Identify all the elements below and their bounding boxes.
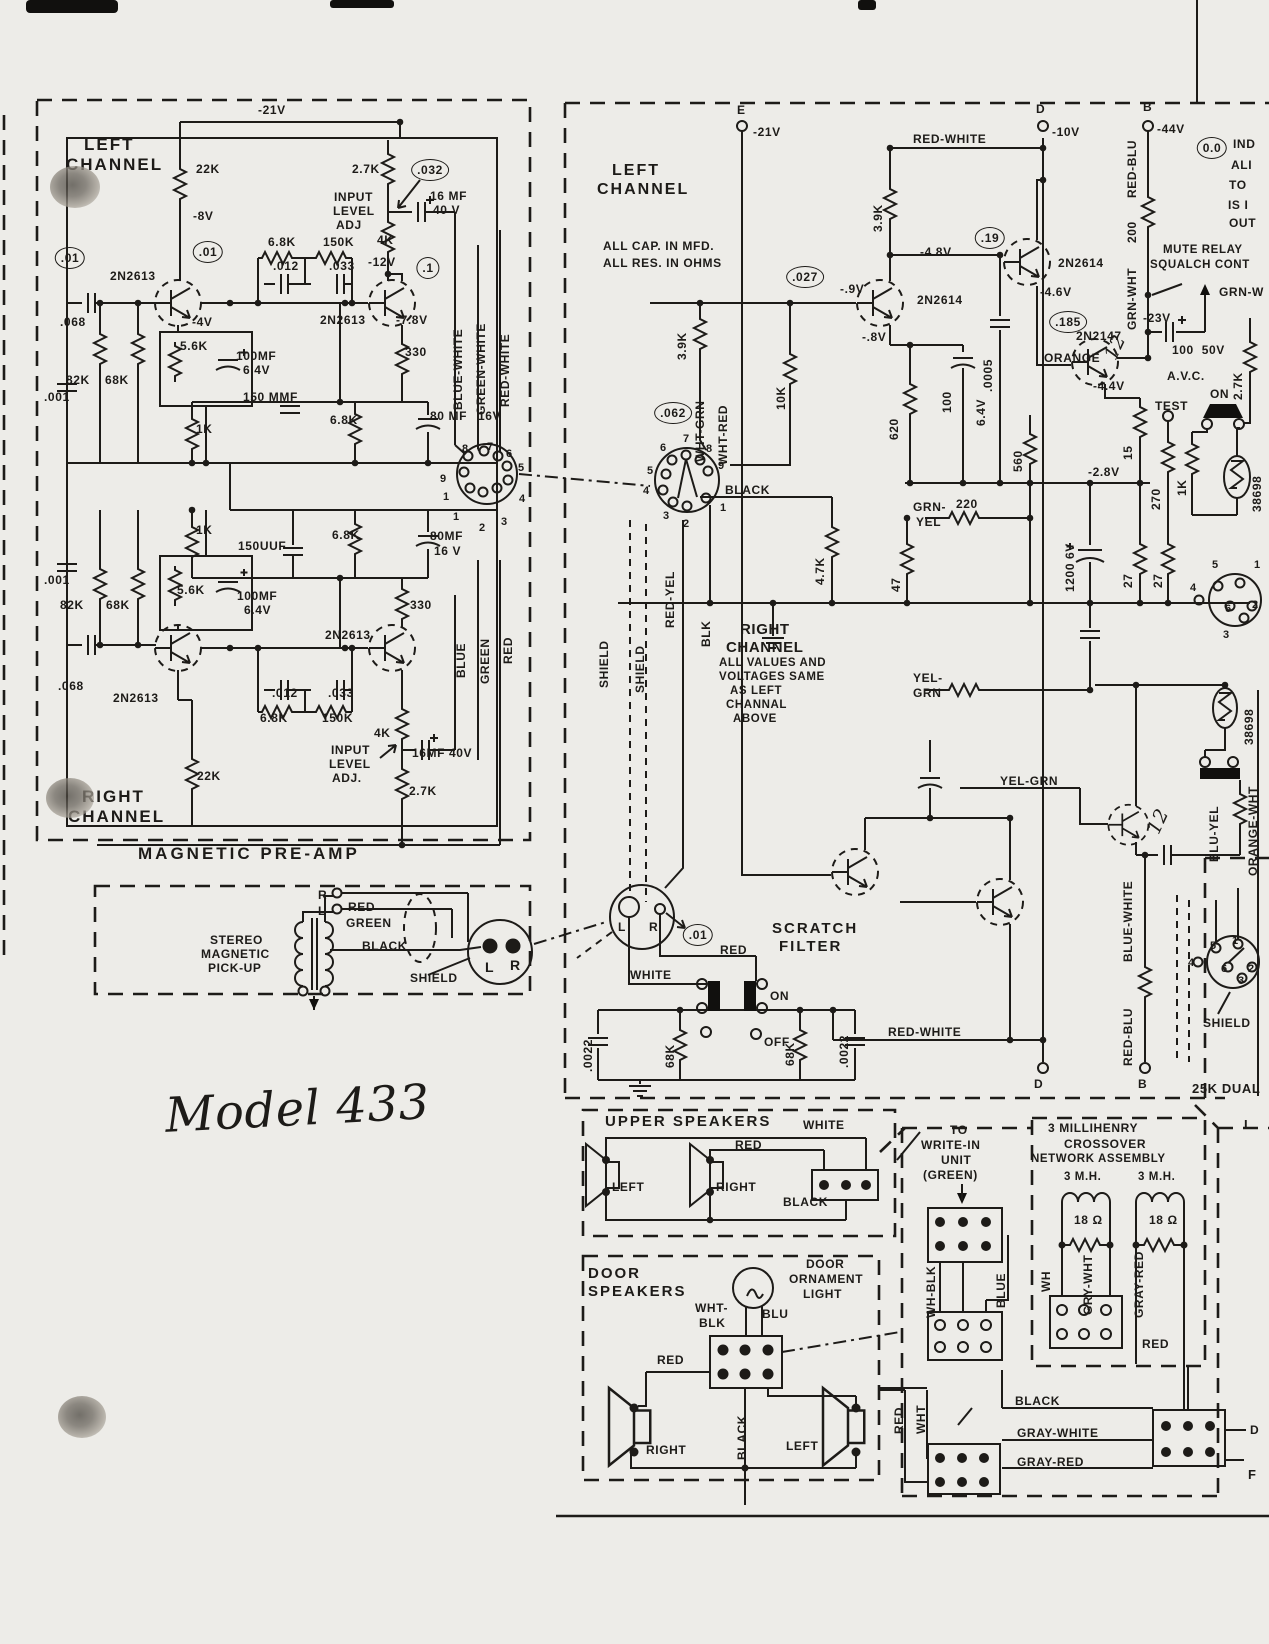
schematic-label: 4K bbox=[374, 727, 391, 739]
schematic-label: BLU-YEL bbox=[1208, 806, 1220, 862]
schematic-label: 4K bbox=[377, 234, 394, 246]
schematic-label: 15 bbox=[1122, 445, 1134, 460]
schematic-label: WHITE bbox=[630, 969, 672, 981]
schematic-label: 2 bbox=[1252, 600, 1259, 611]
schematic-label: 6.8K bbox=[268, 236, 296, 248]
scan-smudge bbox=[46, 778, 94, 818]
schematic-label: 5.6K bbox=[180, 340, 208, 352]
schematic-label: INPUT bbox=[331, 744, 370, 756]
schematic-label: 560 bbox=[1012, 450, 1024, 472]
schematic-label: 68K bbox=[105, 374, 129, 386]
schematic-label: 80 MF bbox=[430, 410, 467, 422]
crossover-title: 3 MILLIHENRY bbox=[1048, 1122, 1138, 1134]
schematic-label: 100 50V bbox=[1172, 344, 1225, 356]
pickup-title: STEREO bbox=[210, 934, 263, 946]
schematic-label: RED-WHITE bbox=[888, 1026, 961, 1038]
schematic-label: GRN-W bbox=[1219, 286, 1264, 298]
schematic-label: YEL-GRN bbox=[1000, 775, 1058, 787]
schematic-label: -10V bbox=[1052, 126, 1080, 138]
schematic-label: 27 bbox=[1152, 573, 1164, 588]
schematic-label: 2N2614 bbox=[917, 294, 963, 306]
schematic-label: 68K bbox=[106, 599, 130, 611]
schematic-label: 68K bbox=[664, 1044, 676, 1068]
schematic-label: 16 V bbox=[434, 545, 461, 557]
schematic-label: (GREEN) bbox=[923, 1169, 978, 1181]
schematic-label: RED bbox=[735, 1139, 762, 1151]
schematic-label: -21V bbox=[258, 104, 286, 116]
schematic-label: 6.4V bbox=[975, 399, 987, 426]
schematic-label: 5 bbox=[1210, 941, 1217, 952]
schematic-label: RIGHT bbox=[716, 1181, 756, 1193]
schematic-label: WH bbox=[1040, 1271, 1052, 1292]
schematic-label: GRN- bbox=[913, 501, 946, 513]
schematic-label: 6.8K bbox=[330, 414, 358, 426]
schematic-label: SQUALCH CONT bbox=[1150, 260, 1250, 272]
schematic-label: 2.7K bbox=[409, 785, 437, 797]
schematic-label: 2N2613 bbox=[320, 314, 366, 326]
schematic-label: -21V bbox=[753, 126, 781, 138]
schematic-label: 4 bbox=[643, 486, 650, 497]
schematic-label: .012 bbox=[273, 260, 299, 272]
notes: OUT bbox=[1229, 217, 1256, 229]
schematic-label: RED-WHITE bbox=[499, 334, 511, 407]
schematic-label: LEVEL bbox=[329, 758, 371, 770]
schematic-label: ORANGE-WHT bbox=[1247, 786, 1259, 876]
schematic-label: ORANGE bbox=[1044, 352, 1100, 364]
schematic-label: RED bbox=[893, 1407, 905, 1434]
notes: IND bbox=[1233, 138, 1255, 150]
schematic-label: 38698 bbox=[1251, 476, 1263, 512]
schematic-label: 18 Ω bbox=[1149, 1214, 1178, 1226]
schematic-label: 82K bbox=[60, 599, 84, 611]
schematic-label: WHT-GRN bbox=[694, 400, 706, 462]
schematic-label: 10K bbox=[775, 386, 787, 410]
schematic-label: 8 bbox=[706, 444, 713, 455]
schematic-label: GRAY-WHITE bbox=[1017, 1427, 1099, 1439]
schematic-label: -4.4V bbox=[1093, 380, 1125, 392]
schematic-label: ABOVE bbox=[733, 714, 777, 726]
schematic-label: 2 bbox=[683, 519, 690, 530]
schematic-label: .1 bbox=[416, 257, 439, 279]
crossover-title: CROSSOVER bbox=[1064, 1138, 1146, 1150]
schematic-label: .01 bbox=[683, 924, 713, 946]
schematic-label: 2 bbox=[479, 523, 486, 534]
schematic-label: 1200 6V bbox=[1064, 543, 1076, 592]
schematic-label: 100MF bbox=[237, 590, 277, 602]
schematic-label: WHT-RED bbox=[717, 405, 729, 465]
schematic-label: D bbox=[1250, 1424, 1259, 1436]
schematic-label: A.V.C. bbox=[1167, 370, 1205, 382]
schematic-label: 150 MMF bbox=[243, 391, 298, 403]
labels-layer: -21VLEFTCHANNEL22K2.7K.03216 MF40 VINPUT… bbox=[0, 0, 1269, 1644]
schematic-label: .027 bbox=[786, 266, 824, 288]
schematic-label: 1 bbox=[1232, 936, 1239, 947]
schematic-label: TEST bbox=[1155, 400, 1188, 412]
schematic-label: 47 bbox=[890, 577, 902, 592]
schematic-label: 3.9K bbox=[676, 332, 688, 360]
schematic-label: 2N2613 bbox=[110, 270, 156, 282]
notes: IS I bbox=[1228, 199, 1248, 211]
schematic-label: 150UUF bbox=[238, 540, 286, 552]
pickup-title: MAGNETIC bbox=[201, 948, 270, 960]
schematic-label: SHIELD bbox=[1203, 1017, 1251, 1029]
upper-speakers-title: UPPER SPEAKERS bbox=[605, 1114, 771, 1129]
schematic-label: 6 bbox=[660, 443, 667, 454]
schematic-label: BLACK bbox=[1015, 1395, 1060, 1407]
schematic-label: .19 bbox=[975, 227, 1005, 249]
schematic-label: BLACK bbox=[736, 1415, 748, 1460]
schematic-label: BLU bbox=[762, 1308, 788, 1320]
schematic-label: L bbox=[1244, 1118, 1253, 1131]
schematic-label: 22K bbox=[196, 163, 220, 175]
schematic-label: 4 bbox=[1190, 583, 1197, 594]
schematic-label: B bbox=[1138, 1078, 1147, 1090]
schematic-label: -4V bbox=[192, 316, 212, 328]
schematic-label: .0005 bbox=[982, 359, 994, 392]
schematic-label: 3 M.H. bbox=[1064, 1172, 1101, 1184]
schematic-label: 7 bbox=[487, 442, 494, 453]
schematic-label: L bbox=[318, 905, 326, 917]
schematic-label: 3 bbox=[501, 517, 508, 528]
schematic-label: 1K bbox=[196, 423, 213, 435]
scratch-filter-title: SCRATCH bbox=[772, 921, 858, 936]
schematic-label: RED bbox=[502, 637, 514, 664]
schematic-label: WHT- bbox=[695, 1302, 728, 1314]
schematic-label: MUTE RELAY bbox=[1163, 245, 1243, 257]
schematic-label: GREEN bbox=[346, 917, 392, 929]
schematic-label: -4.6V bbox=[1040, 286, 1072, 298]
preamp-left-channel-title: LEFT bbox=[84, 136, 135, 153]
schematic-label: 5 bbox=[518, 463, 525, 474]
schematic-label: 150K bbox=[323, 236, 354, 248]
schematic-label: -7.8V bbox=[396, 314, 428, 326]
schematic-label: 270 bbox=[1150, 488, 1162, 510]
schematic-label: BLUE-WHITE bbox=[452, 329, 464, 410]
schematic-label: GREEN bbox=[479, 638, 491, 684]
schematic-label: -12V bbox=[368, 256, 396, 268]
schematic-label: ON bbox=[1210, 388, 1229, 400]
schematic-label: GRAY-RED bbox=[1133, 1251, 1145, 1318]
schematic-label: .01 bbox=[193, 241, 223, 263]
schematic-label: .033 bbox=[328, 687, 354, 699]
left-channel-title: LEFT bbox=[612, 163, 660, 179]
schematic-label: ADJ bbox=[336, 219, 362, 231]
schematic-label: 6.4V bbox=[243, 364, 270, 376]
schematic-label: BLUE-WHITE bbox=[1122, 881, 1134, 962]
schematic-label: GRN bbox=[913, 687, 941, 699]
schematic-label: 5.6K bbox=[177, 584, 205, 596]
scan-smudge bbox=[50, 166, 100, 208]
schematic-label: SHIELD bbox=[410, 972, 458, 984]
schematic-label: ON bbox=[770, 990, 789, 1002]
schematic-label: 6.8K bbox=[332, 529, 360, 541]
schematic-label: 0.0 bbox=[1197, 137, 1227, 159]
door-speakers-title: SPEAKERS bbox=[588, 1284, 687, 1299]
schematic-label: R bbox=[510, 958, 521, 972]
schematic-label: RIGHT bbox=[740, 622, 790, 637]
schematic-label: WHT bbox=[915, 1405, 927, 1434]
schematic-label: -.9V bbox=[840, 283, 864, 295]
schematic-label: -4.8V bbox=[920, 246, 952, 258]
schematic-label: VOLTAGES SAME bbox=[719, 672, 825, 684]
crossover-title: NETWORK ASSEMBLY bbox=[1031, 1154, 1166, 1166]
pickup-title: PICK-UP bbox=[208, 962, 262, 974]
schematic-label: LEVEL bbox=[333, 205, 375, 217]
schematic-label: WRITE-IN bbox=[921, 1139, 980, 1151]
schematic-label: 2 bbox=[1248, 964, 1255, 975]
schematic-label: BLUE bbox=[455, 643, 467, 678]
schematic-label: .068 bbox=[60, 316, 86, 328]
schematic-label: 68K bbox=[784, 1042, 796, 1066]
schematic-label: 220 bbox=[956, 498, 978, 510]
scratch-filter-title: FILTER bbox=[779, 939, 842, 954]
schematic-label: BLACK bbox=[783, 1196, 828, 1208]
model-number: Model 433 bbox=[164, 1078, 431, 1140]
schematic-label: 150K bbox=[322, 712, 353, 724]
schematic-label: RED-BLU bbox=[1126, 140, 1138, 198]
schematic-label: RED bbox=[720, 944, 747, 956]
schematic-label: YEL- bbox=[913, 672, 943, 684]
schematic-label: CHANNAL bbox=[726, 700, 787, 712]
schematic-label: 4 bbox=[519, 494, 526, 505]
schematic-label: 5 bbox=[1212, 560, 1219, 571]
schematic-label: 1 bbox=[1254, 560, 1261, 571]
schematic-label: 8 bbox=[462, 444, 469, 455]
schematic-label: 1K bbox=[1176, 479, 1188, 496]
schematic-label: 3 bbox=[663, 511, 670, 522]
schematic-label: 82K bbox=[66, 374, 90, 386]
schematic-label: BLACK bbox=[362, 940, 407, 952]
schematic-label: 3.9K bbox=[872, 204, 884, 232]
schematic-label: 6 bbox=[1221, 964, 1228, 975]
schematic-label: 27 bbox=[1122, 573, 1134, 588]
schematic-label: INPUT bbox=[334, 191, 373, 203]
preamp-title: MAGNETIC PRE-AMP bbox=[138, 845, 360, 862]
schematic-label: 3 M.H. bbox=[1138, 1172, 1175, 1184]
schematic-label: L bbox=[485, 960, 494, 974]
schematic-label: 330 bbox=[410, 599, 432, 611]
schematic-label: R bbox=[318, 889, 327, 901]
notes: ALI bbox=[1231, 159, 1252, 171]
schematic-label: 100MF bbox=[236, 350, 276, 362]
schematic-label: 16MF 40V bbox=[412, 747, 472, 759]
schematic-label: RED bbox=[657, 1354, 684, 1366]
schematic-label: GREEN-WHITE bbox=[475, 323, 487, 415]
schematic-label: BLK bbox=[699, 1317, 725, 1329]
schematic-label: CHANNEL bbox=[726, 640, 804, 655]
schematic-label: 6 bbox=[506, 449, 513, 460]
notes: ALL RES. IN OHMS bbox=[603, 257, 722, 269]
schematic-label: 12 bbox=[1145, 806, 1173, 837]
schematic-label: .001 bbox=[44, 574, 70, 586]
schematic-label: SHIELD bbox=[634, 645, 646, 693]
schematic-label: 1K bbox=[196, 524, 213, 536]
notes: ALL CAP. IN MFD. bbox=[603, 240, 714, 252]
schematic-label: 2N2613 bbox=[113, 692, 159, 704]
schematic-label: L bbox=[618, 921, 626, 933]
schematic-label: 7 bbox=[683, 434, 690, 445]
schematic-label: 200 bbox=[1126, 221, 1138, 243]
schematic-label: 6.8K bbox=[260, 712, 288, 724]
schematic-label: GRAY-RED bbox=[1017, 1456, 1084, 1468]
schematic-label: -2.8V bbox=[1088, 466, 1120, 478]
schematic-label: F bbox=[1248, 1468, 1257, 1481]
schematic-label: 9 bbox=[440, 474, 447, 485]
schematic-label: RED bbox=[1142, 1338, 1169, 1350]
schematic-label: BLACK bbox=[725, 484, 770, 496]
schematic-label: -.8V bbox=[862, 331, 886, 343]
schematic-label: -23V bbox=[1143, 312, 1171, 324]
schematic-label: D bbox=[1034, 1078, 1043, 1090]
schematic-label: DOOR bbox=[806, 1258, 844, 1270]
schematic-label: .032 bbox=[411, 159, 449, 181]
schematic-label: 2N2614 bbox=[1058, 257, 1104, 269]
schematic-label: 25K DUAL bbox=[1192, 1082, 1260, 1095]
schematic-label: 40 V bbox=[433, 204, 460, 216]
schematic-label: 5 bbox=[647, 466, 654, 477]
schematic-label: .033 bbox=[329, 260, 355, 272]
schematic-label: 3 bbox=[1238, 976, 1245, 987]
schematic-label: RED-YEL bbox=[664, 571, 676, 628]
scan-smudge bbox=[58, 1396, 106, 1438]
schematic-label: 80MF bbox=[430, 530, 463, 542]
notes: TO bbox=[1229, 179, 1247, 191]
schematic-label: AS LEFT bbox=[730, 686, 782, 698]
schematic-label: UNIT bbox=[941, 1154, 971, 1166]
schematic-label: 2.7K bbox=[1232, 372, 1244, 400]
schematic-label: .01 bbox=[55, 247, 85, 269]
schematic-scan-page: -21VLEFTCHANNEL22K2.7K.03216 MF40 VINPUT… bbox=[0, 0, 1269, 1644]
schematic-label: SHIELD bbox=[598, 640, 610, 688]
schematic-label: BLK bbox=[700, 621, 712, 647]
schematic-label: WHITE bbox=[803, 1119, 845, 1131]
schematic-label: B bbox=[1143, 101, 1152, 113]
schematic-label: 2.7K bbox=[352, 163, 380, 175]
schematic-label: 6.4V bbox=[244, 604, 271, 616]
schematic-label: RED-BLU bbox=[1122, 1008, 1134, 1066]
schematic-label: 6 bbox=[1225, 604, 1232, 615]
schematic-label: .012 bbox=[272, 687, 298, 699]
schematic-label: 2N2613 bbox=[325, 629, 371, 641]
schematic-label: D bbox=[1036, 103, 1045, 115]
schematic-label: 100 bbox=[941, 391, 953, 413]
schematic-label: .001 bbox=[44, 391, 70, 403]
schematic-label: R bbox=[649, 921, 658, 933]
left-channel-title: CHANNEL bbox=[597, 182, 689, 198]
door-speakers-title: DOOR bbox=[588, 1266, 641, 1281]
schematic-label: WH-BLK bbox=[925, 1266, 937, 1318]
schematic-label: 38698 bbox=[1243, 709, 1255, 745]
schematic-label: 4.7K bbox=[814, 557, 826, 585]
schematic-label: E bbox=[737, 104, 746, 116]
schematic-label: 4 bbox=[1188, 958, 1195, 969]
schematic-label: RED-WHITE bbox=[913, 133, 986, 145]
schematic-label: BLUE bbox=[995, 1273, 1007, 1308]
schematic-label: GRY-WHT bbox=[1082, 1255, 1094, 1315]
schematic-label: 330 bbox=[405, 346, 427, 358]
schematic-label: 1 bbox=[720, 503, 727, 514]
schematic-label: 1 bbox=[443, 492, 450, 503]
schematic-label: RED bbox=[348, 901, 375, 913]
schematic-label: 18 Ω bbox=[1074, 1214, 1103, 1226]
schematic-label: RIGHT bbox=[646, 1444, 686, 1456]
schematic-label: .062 bbox=[654, 402, 692, 424]
schematic-label: .0022 bbox=[582, 1039, 594, 1072]
schematic-label: .068 bbox=[58, 680, 84, 692]
schematic-label: 3 bbox=[1223, 630, 1230, 641]
schematic-label: LEFT bbox=[786, 1440, 818, 1452]
schematic-label: .0022 bbox=[838, 1035, 850, 1068]
schematic-label: ADJ. bbox=[332, 772, 362, 784]
schematic-label: ORNAMENT bbox=[789, 1273, 863, 1285]
schematic-label: LEFT bbox=[612, 1181, 644, 1193]
schematic-label: GRN-WHT bbox=[1126, 268, 1138, 330]
schematic-label: 620 bbox=[888, 418, 900, 440]
schematic-label: LIGHT bbox=[803, 1288, 842, 1300]
schematic-label: 22K bbox=[197, 770, 221, 782]
schematic-label: 1 bbox=[453, 512, 460, 523]
schematic-label: ALL VALUES AND bbox=[719, 658, 826, 670]
schematic-label: TO bbox=[950, 1124, 968, 1136]
schematic-label: 16 MF bbox=[430, 190, 467, 202]
schematic-label: -8V bbox=[193, 210, 213, 222]
schematic-label: YEL bbox=[916, 516, 941, 528]
schematic-label: -44V bbox=[1157, 123, 1185, 135]
